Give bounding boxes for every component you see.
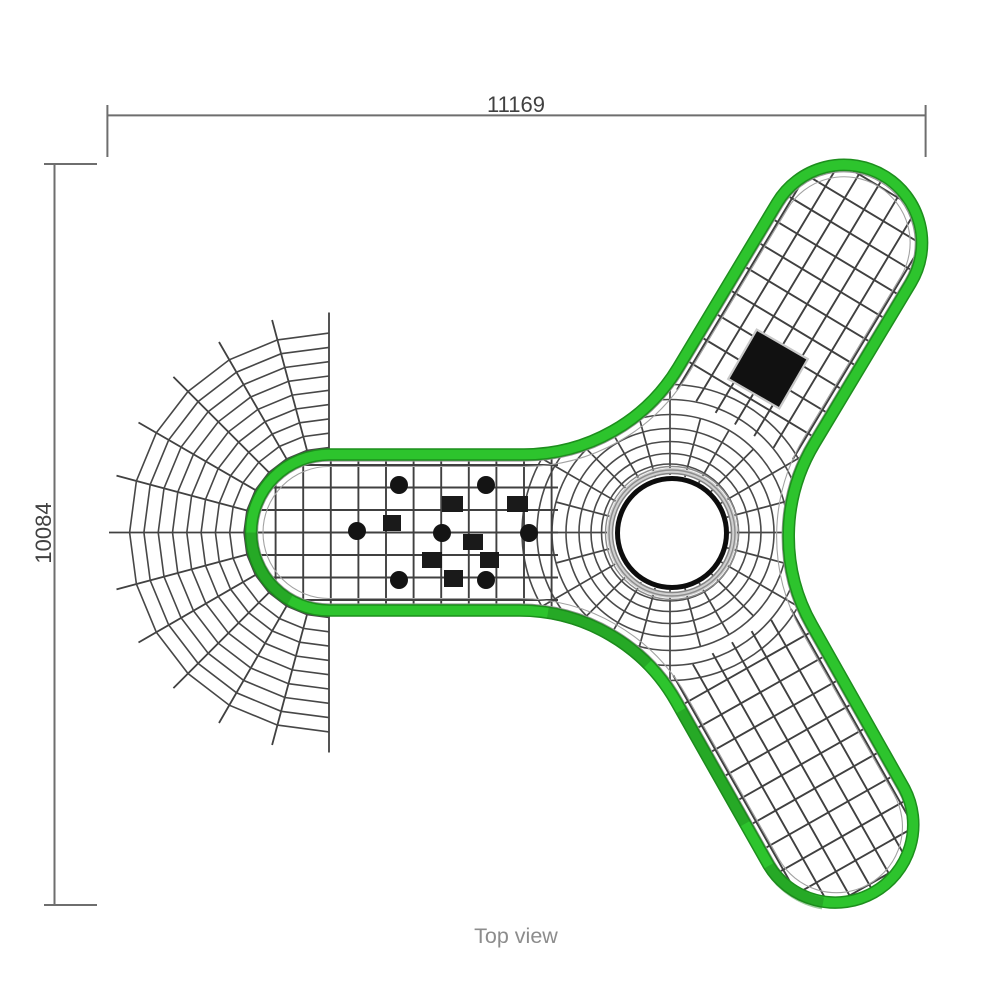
svg-text:Top view: Top view [474, 924, 558, 948]
svg-text:11169: 11169 [487, 92, 545, 117]
svg-text:10084: 10084 [31, 502, 56, 563]
